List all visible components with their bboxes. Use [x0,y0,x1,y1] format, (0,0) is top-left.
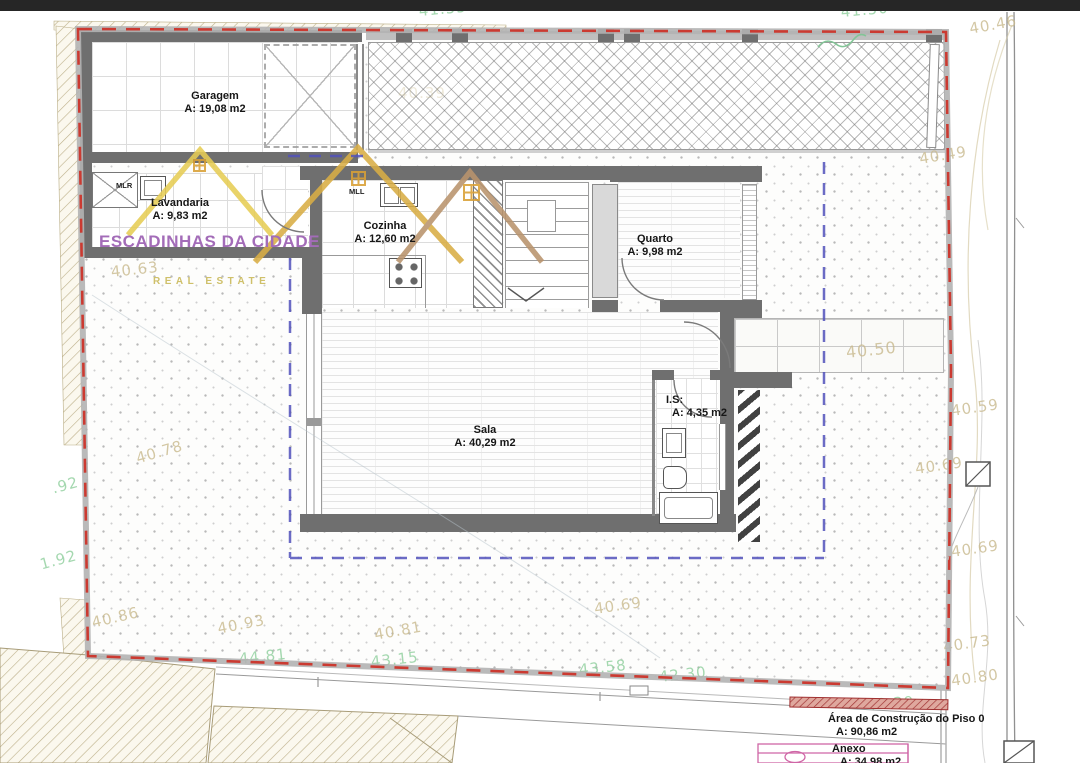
appliance-label-mll: MLL [349,187,364,196]
room-name: Lavandaria [115,197,245,210]
boundary-wall-band [78,29,951,688]
stair-arrow [508,288,544,301]
summary-name: Anexo [832,743,901,756]
room-area: A: 19,08 m2 [150,103,280,116]
room-label-kitchen: Cozinha A: 12,60 m2 [325,220,445,246]
floor-plan-canvas: ESCADINHAS DA CIDADE REAL ESTATE [0,0,1080,763]
survey-line [92,295,660,658]
room-label-living-room: Sala A: 40,29 m2 [420,424,550,450]
room-name: I.S: [666,394,736,407]
room-name: Quarto [595,233,715,246]
annex-wall-hatched [790,697,948,710]
summary-piso0: Área de Construção do Piso 0 A: 90,86 m2 [828,713,984,739]
room-label-garage: Garagem A: 19,08 m2 [150,90,280,116]
upper-floor-outline [288,156,824,558]
property-boundary-line [78,29,951,688]
room-name: Sala [420,424,550,437]
room-label-bathroom: I.S: A: 4,35 m2 [666,394,736,420]
summary-name: Área de Construção do Piso 0 [828,713,984,726]
summary-anexo: Anexo A: 34,98 m2 [832,743,901,763]
room-area: A: 12,60 m2 [325,233,445,246]
room-label-laundry: Lavandaria A: 9,83 m2 [115,197,245,223]
room-name: Cozinha [325,220,445,233]
vegetation-mark [818,35,866,47]
room-area: A: 9,98 m2 [595,246,715,259]
room-area: A: 4,35 m2 [666,407,736,420]
room-name: Garagem [150,90,280,103]
room-area: A: 40,29 m2 [420,437,550,450]
viewer-top-bar [0,0,1080,11]
summary-area: A: 90,86 m2 [828,726,984,739]
boundary-gate [630,686,648,695]
room-area: A: 9,83 m2 [115,210,245,223]
room-label-bedroom: Quarto A: 9,98 m2 [595,233,715,259]
appliance-label-mlr: MLR [116,181,132,190]
summary-area: A: 34,98 m2 [832,756,901,763]
